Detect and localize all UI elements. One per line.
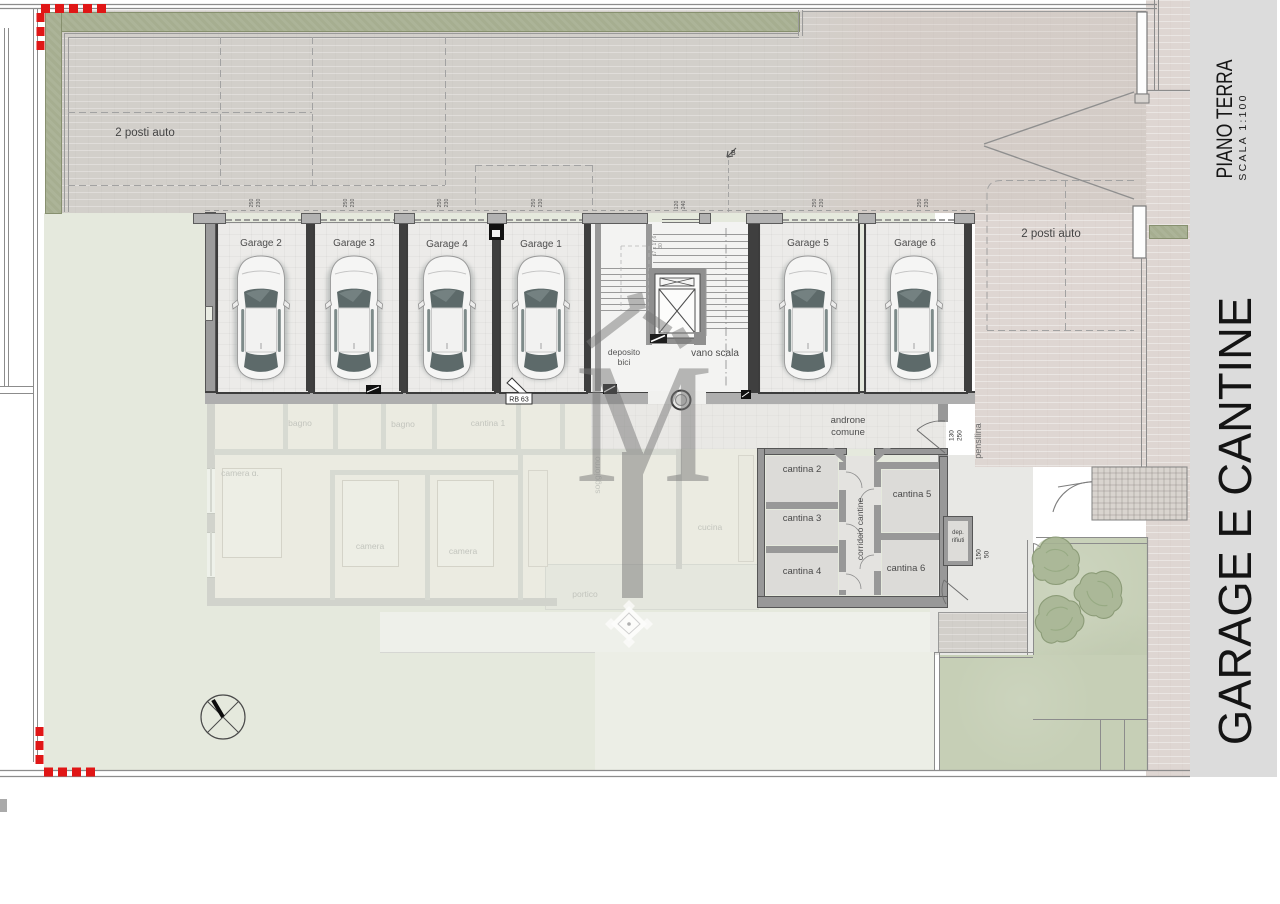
svg-text:M: M: [575, 329, 713, 519]
